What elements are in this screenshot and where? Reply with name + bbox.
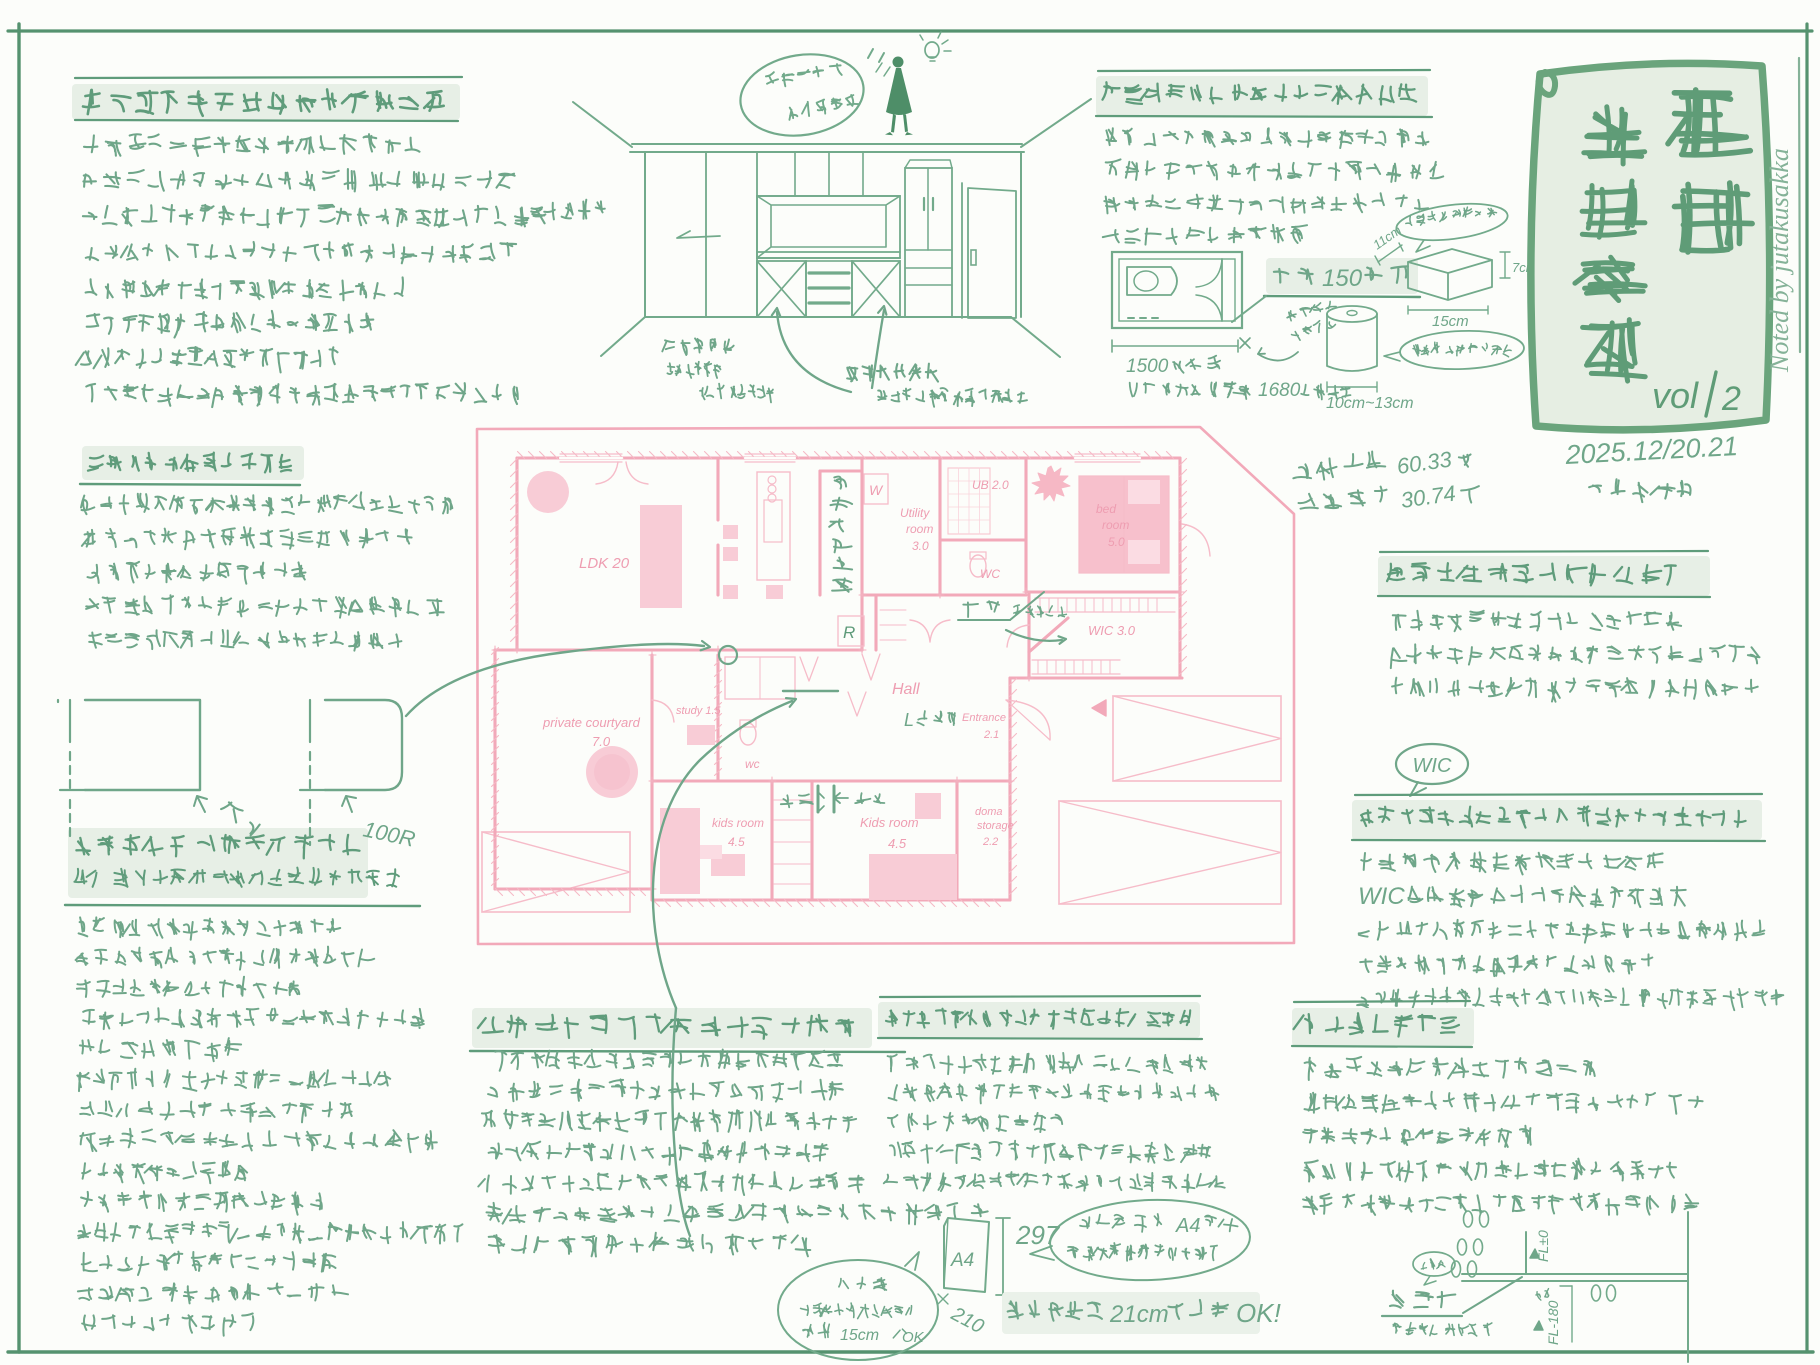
svg-text:5.0: 5.0 <box>1108 535 1125 549</box>
svg-text:3.0: 3.0 <box>912 539 929 553</box>
svg-text:kids room: kids room <box>712 816 764 830</box>
svg-text:60.33: 60.33 <box>1395 446 1454 479</box>
svg-text:doma: doma <box>975 806 1003 818</box>
svg-text:FL-180: FL-180 <box>1545 1300 1561 1345</box>
svg-text:A4: A4 <box>950 1250 974 1271</box>
svg-text:2.2: 2.2 <box>982 836 998 848</box>
svg-text:LDK 20: LDK 20 <box>579 555 630 572</box>
svg-text:bed: bed <box>1096 502 1116 516</box>
svg-text:100R: 100R <box>361 816 418 851</box>
svg-text:room: room <box>906 522 933 536</box>
svg-text:vol: vol <box>1652 375 1699 416</box>
svg-text:4.5: 4.5 <box>728 835 745 849</box>
svg-text:WC: WC <box>980 567 1000 581</box>
svg-text:Hall: Hall <box>892 681 920 698</box>
svg-text:WIC: WIC <box>1413 755 1452 777</box>
svg-text:297: 297 <box>1015 1220 1061 1250</box>
svg-text:storage: storage <box>977 820 1014 832</box>
svg-text:L: L <box>904 710 914 730</box>
svg-text:1680: 1680 <box>1258 380 1301 401</box>
svg-text:15cm: 15cm <box>840 1327 879 1344</box>
svg-text:Entrance: Entrance <box>962 712 1006 724</box>
svg-text:room: room <box>1102 518 1129 532</box>
svg-text:Utility: Utility <box>900 506 930 520</box>
svg-text:10cm~13cm: 10cm~13cm <box>1326 395 1414 412</box>
svg-text:UB 2.0: UB 2.0 <box>972 478 1009 492</box>
svg-text:2025.12/20.21: 2025.12/20.21 <box>1564 431 1739 470</box>
svg-text:1500: 1500 <box>1126 356 1169 377</box>
svg-text:WIC: WIC <box>1358 883 1405 910</box>
svg-text:R: R <box>843 623 855 642</box>
svg-text:30.74: 30.74 <box>1399 481 1457 513</box>
svg-text:Kids room: Kids room <box>860 815 919 830</box>
svg-text:Noted by jutakusakka: Noted by jutakusakka <box>1765 148 1794 373</box>
svg-text:2: 2 <box>1721 380 1741 418</box>
svg-text:2.1: 2.1 <box>983 729 999 741</box>
svg-text:W: W <box>869 482 884 498</box>
svg-text:wc: wc <box>745 757 760 771</box>
svg-text:7.0: 7.0 <box>592 734 611 749</box>
svg-text:15cm: 15cm <box>1432 313 1469 330</box>
svg-text:study 1.5: study 1.5 <box>676 705 722 717</box>
svg-text:private courtyard: private courtyard <box>542 715 641 730</box>
svg-text:OK: OK <box>902 1329 925 1346</box>
svg-text:OK!: OK! <box>1236 1298 1281 1328</box>
svg-text:150: 150 <box>1322 265 1363 292</box>
svg-text:210: 210 <box>947 1303 988 1339</box>
svg-text:A4: A4 <box>1175 1215 1200 1237</box>
svg-text:21cm: 21cm <box>1109 1301 1169 1328</box>
svg-text:WIC 3.0: WIC 3.0 <box>1088 623 1136 638</box>
svg-text:4.5: 4.5 <box>888 836 907 851</box>
